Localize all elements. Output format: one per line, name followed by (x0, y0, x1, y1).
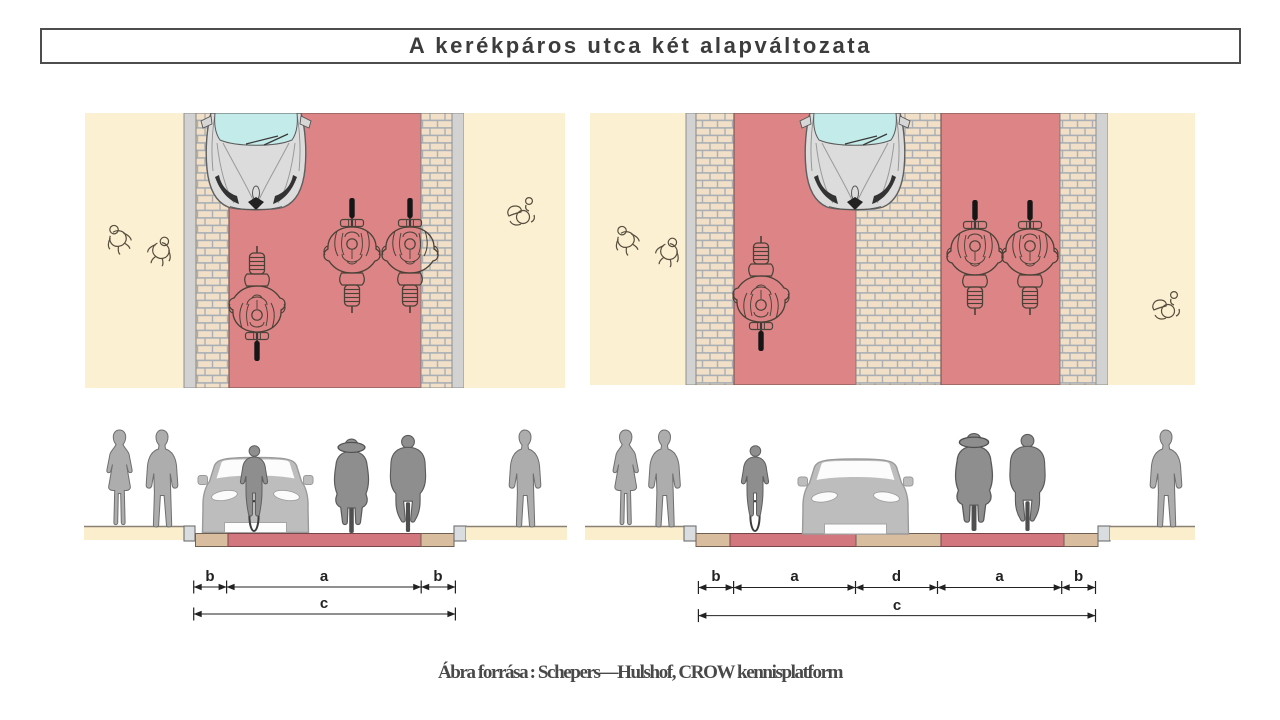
svg-text:a: a (790, 568, 799, 585)
svg-text:c: c (893, 597, 901, 614)
svg-text:b: b (433, 568, 442, 585)
svg-text:d: d (892, 568, 901, 585)
svg-text:b: b (205, 568, 214, 585)
svg-text:a: a (320, 568, 329, 585)
svg-text:c: c (320, 595, 328, 612)
svg-text:b: b (711, 568, 720, 585)
svg-text:a: a (995, 568, 1004, 585)
svg-text:b: b (1074, 568, 1083, 585)
